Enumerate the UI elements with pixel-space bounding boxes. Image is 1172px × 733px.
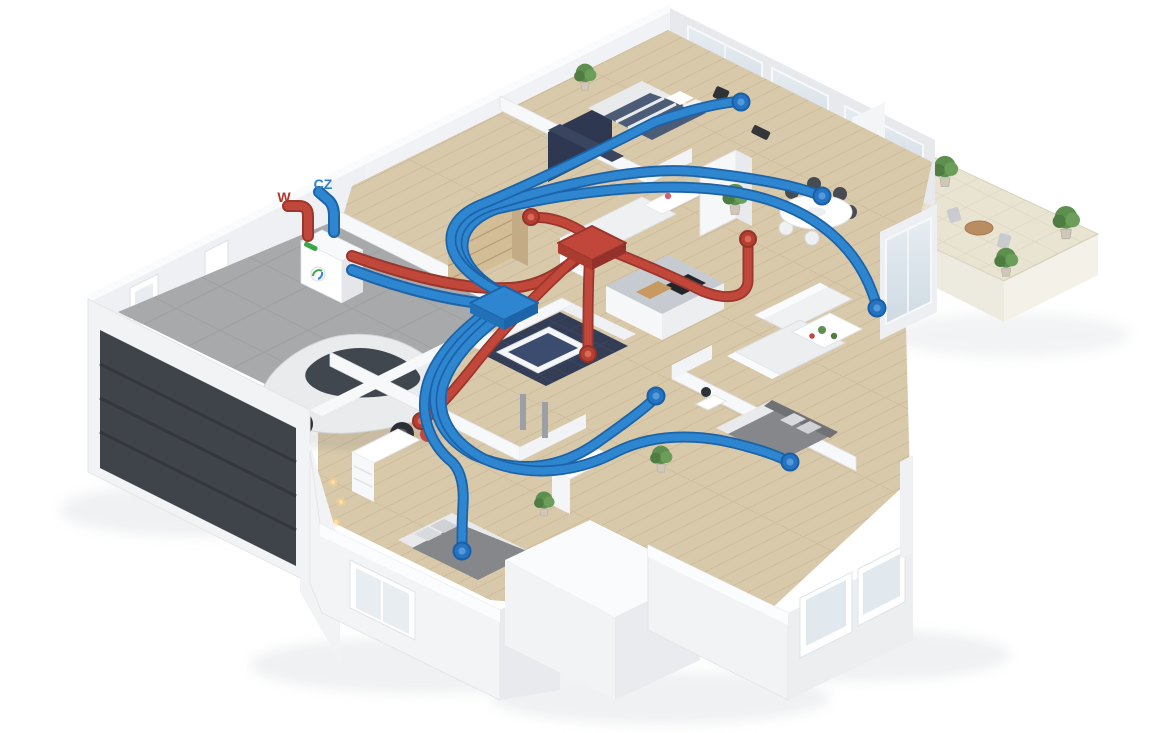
isometric-house-scene: W CZ: [0, 0, 1172, 733]
table-plant: [818, 326, 826, 334]
ventilation-floorplan-illustration: W CZ: [0, 0, 1172, 733]
flower-vase: [665, 193, 671, 199]
terrace-table: [965, 221, 993, 235]
east-corner-wall: [900, 455, 913, 559]
table-plant-2: [831, 333, 837, 339]
label-exhaust-w: W: [277, 189, 291, 205]
table-lamp: [701, 387, 711, 397]
table-flowers: [809, 333, 815, 339]
towel-rack-2: [542, 402, 548, 438]
towel-rack: [520, 394, 526, 430]
dining-chair-white: [805, 231, 819, 245]
label-intake-cz: CZ: [314, 176, 333, 192]
